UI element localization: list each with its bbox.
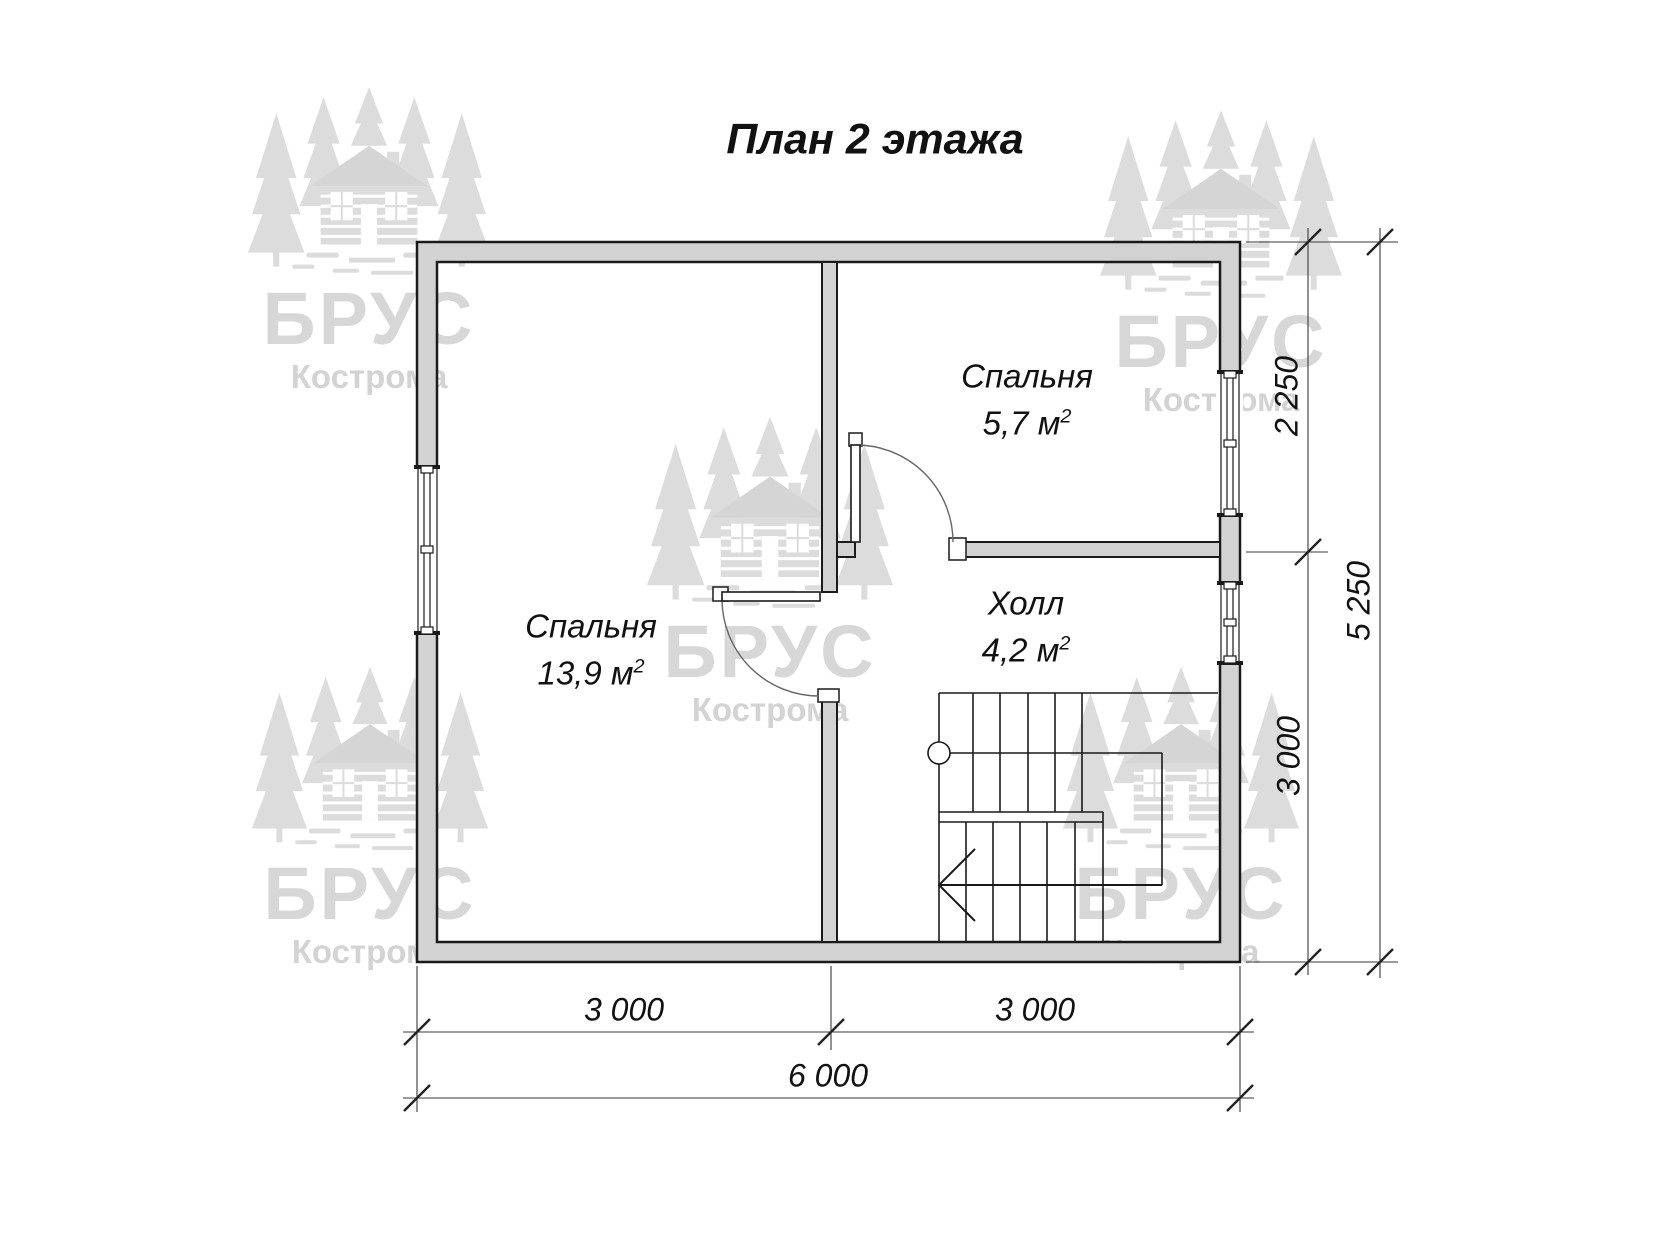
dim-label-right-2250: 2 250 — [1269, 356, 1306, 436]
room-label-hall: Холл 4,2 м2 — [982, 584, 1071, 671]
room-area: 13,9 м2 — [525, 647, 657, 694]
door-bedroom-large — [722, 592, 820, 696]
door-bedroom-small — [851, 445, 953, 542]
window-right-upper — [1217, 371, 1243, 516]
room-name: Холл — [982, 584, 1071, 624]
staircase — [928, 693, 1218, 942]
room-label-bedroom-small: Спальня 5,7 м2 — [961, 357, 1093, 444]
window-left — [414, 466, 440, 634]
room-name: Спальня — [525, 607, 657, 647]
dim-label-bottom-right-3000: 3 000 — [995, 992, 1075, 1029]
drawing-title: План 2 этажа — [726, 116, 1023, 165]
room-area: 5,7 м2 — [961, 397, 1093, 444]
room-label-bedroom-large: Спальня 13,9 м2 — [525, 607, 657, 694]
room-name: Спальня — [961, 357, 1093, 397]
door-jambs — [713, 433, 966, 702]
dim-label-bottom-left-3000: 3 000 — [584, 992, 664, 1029]
dim-label-right-5250: 5 250 — [1341, 561, 1378, 641]
dim-label-bottom-6000: 6 000 — [788, 1058, 868, 1095]
window-right-lower — [1217, 582, 1243, 663]
floor-plan-drawing: БРУС Кострома БРУС Кострома БРУС Костром… — [0, 0, 1653, 1240]
plan-linework — [0, 0, 1653, 1240]
room-area: 4,2 м2 — [982, 624, 1071, 671]
stair-direction-arrow — [939, 849, 1162, 921]
dim-label-right-3000: 3 000 — [1271, 716, 1308, 796]
